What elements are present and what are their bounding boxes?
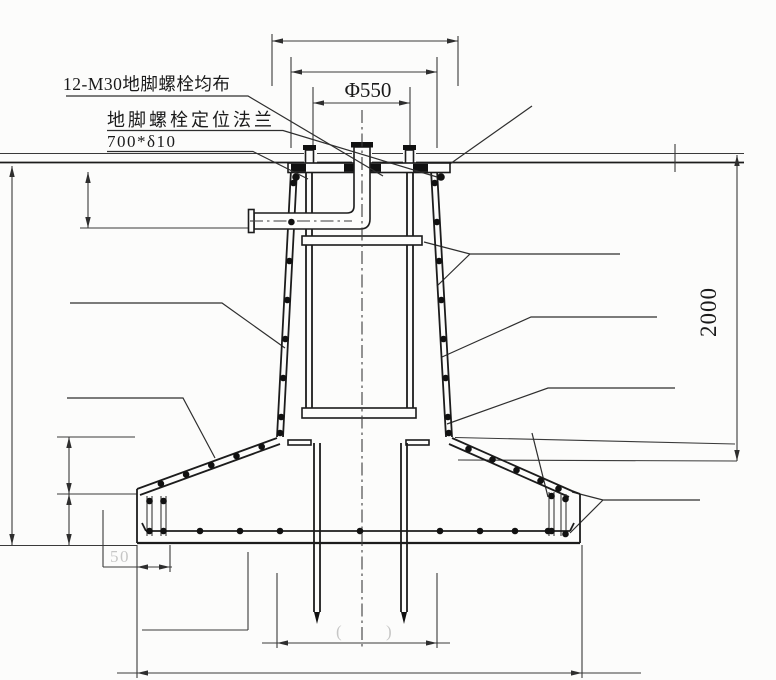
callout-flange-line1: 地脚螺栓定位法兰 [107,110,275,130]
callout-flange-line2: 700*δ10 [107,132,177,151]
foundation-section-drawing: Φ550 2000 50 ( ) [0,0,776,680]
anchor-bolt-left [306,150,314,164]
lower-plate [302,408,416,418]
technical-drawing-sheet: Φ550 2000 50 ( ) [0,0,776,680]
top-dimensions: Φ550 [272,34,458,150]
right-depth-dimension: 2000 [455,155,740,461]
erased-dim-close: ) [386,622,393,641]
footing-outline [137,438,580,543]
dim-bolt-circle-label: Φ550 [345,78,392,102]
callout-anchor-bolts: 12-M30地脚螺栓均布 [63,74,230,94]
left-dimensions [0,166,250,546]
dim-depth-label: 2000 [696,287,721,337]
bottom-dimensions: 50 ( ) [103,510,641,678]
anchor-bolt-right [406,150,414,164]
dim-edge-offset-label: 50 [110,547,130,566]
erased-dim-open: ( [336,622,343,641]
